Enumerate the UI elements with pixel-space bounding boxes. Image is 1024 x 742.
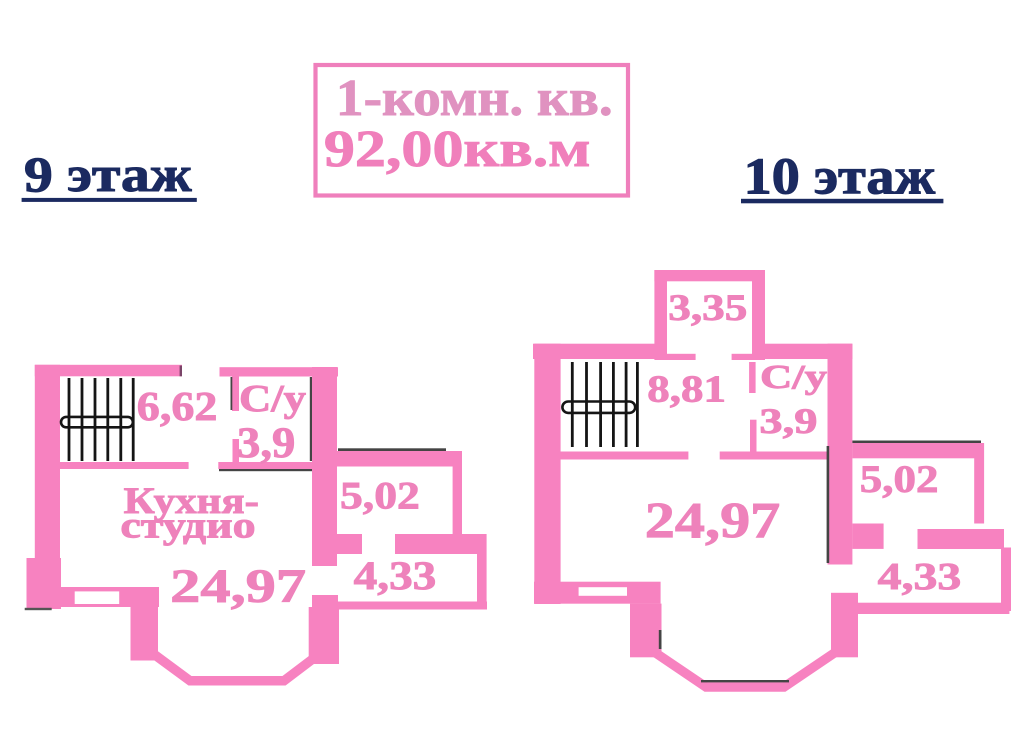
svg-text:24,97: 24,97 <box>645 493 781 549</box>
svg-text:8,81: 8,81 <box>647 368 726 410</box>
svg-text:4,33: 4,33 <box>354 553 437 598</box>
svg-text:студио: студио <box>120 506 255 547</box>
svg-text:6,62: 6,62 <box>137 383 218 429</box>
svg-text:92,00кв.м: 92,00кв.м <box>324 121 591 178</box>
svg-text:С/у: С/у <box>239 378 306 420</box>
svg-text:С/у: С/у <box>760 359 827 396</box>
svg-text:1-комн. кв.: 1-комн. кв. <box>336 70 613 127</box>
svg-text:24,97: 24,97 <box>170 560 306 613</box>
svg-text:3,9: 3,9 <box>237 420 295 467</box>
svg-text:3,9: 3,9 <box>759 401 817 441</box>
svg-text:5,02: 5,02 <box>340 475 420 518</box>
svg-text:5,02: 5,02 <box>860 458 939 501</box>
svg-text:10 этаж: 10 этаж <box>744 148 936 205</box>
svg-text:3,35: 3,35 <box>668 288 747 329</box>
svg-text:9 этаж: 9 этаж <box>24 146 192 202</box>
svg-text:4,33: 4,33 <box>878 556 962 598</box>
